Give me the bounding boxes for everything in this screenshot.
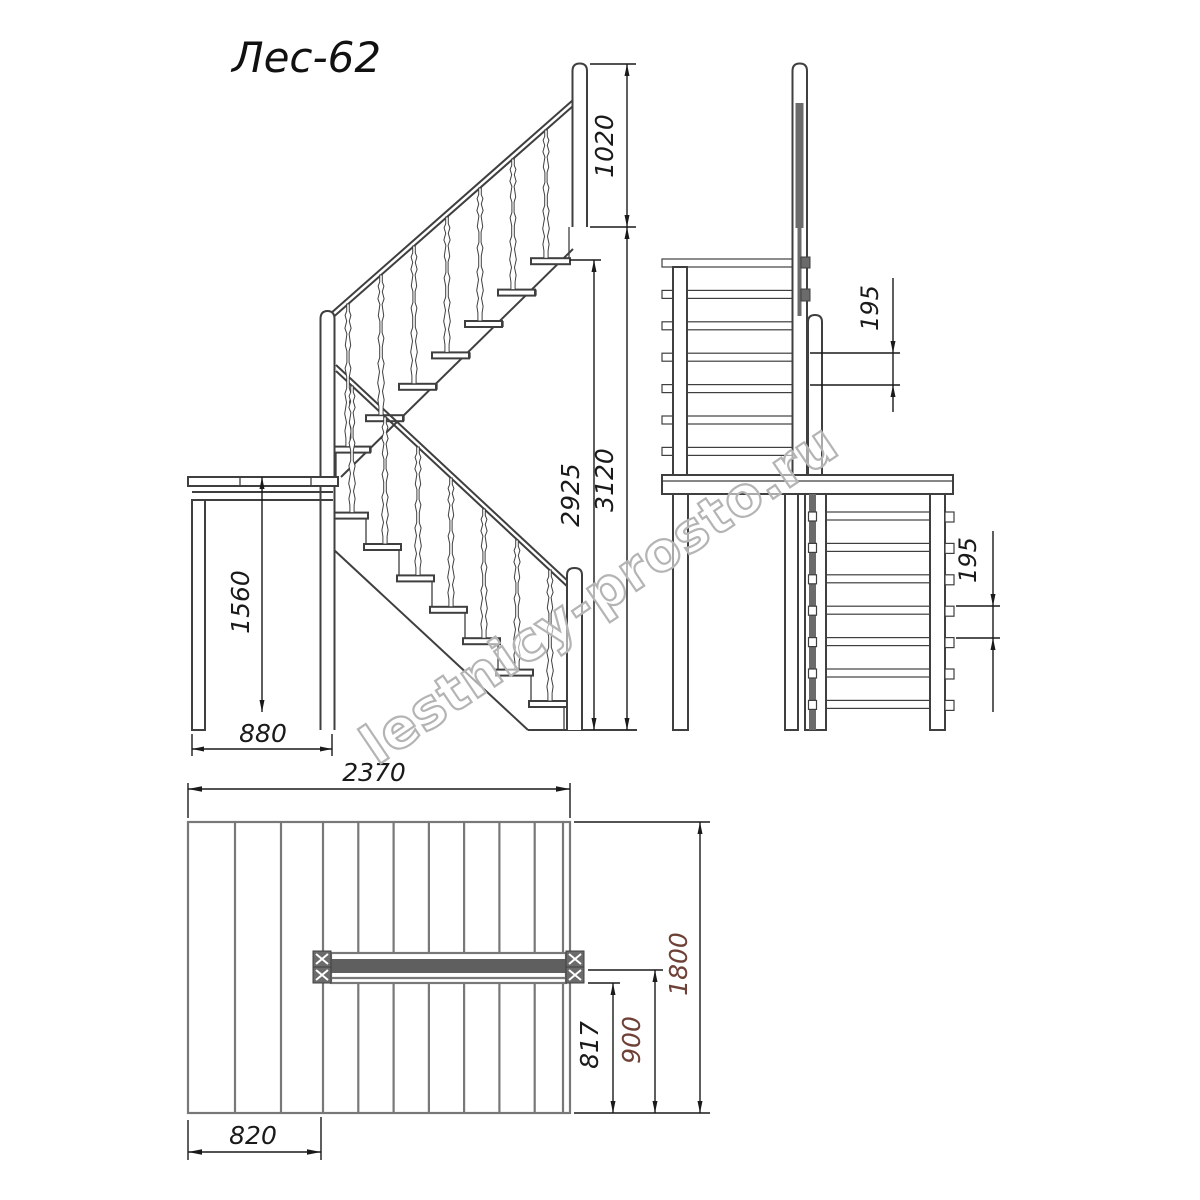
dim-2925: 2925 — [556, 463, 585, 527]
baluster — [477, 188, 484, 321]
front-left-post — [673, 267, 687, 476]
front-center-leg — [785, 494, 798, 730]
drawing-title: Лес-62 — [230, 33, 381, 82]
dim-195-lower: 195 — [954, 537, 982, 583]
baluster — [444, 217, 451, 352]
upper-stringer — [341, 249, 573, 477]
baluster — [448, 478, 455, 607]
mid-newel-post — [321, 311, 335, 730]
baluster — [378, 275, 385, 415]
front-elevation-view — [662, 64, 954, 731]
baluster — [543, 130, 550, 258]
top-newel-post — [573, 64, 588, 228]
dim-1560: 1560 — [226, 570, 255, 634]
baluster — [411, 246, 418, 384]
baluster — [510, 159, 517, 290]
tread-end-tab — [801, 257, 810, 268]
dim-1020: 1020 — [590, 114, 619, 178]
staircase-drawing: 1020 3120 2925 1560 880 195 — [0, 0, 1200, 1200]
side-platform — [188, 477, 338, 730]
dim-195-upper: 195 — [856, 285, 884, 331]
tread-end-tab — [801, 289, 810, 301]
plan-view — [188, 822, 584, 1113]
dim-817: 817 — [575, 1021, 604, 1069]
rail-end-on — [796, 103, 804, 228]
dim-820: 820 — [229, 1121, 277, 1150]
baluster — [382, 417, 389, 544]
front-right-post — [930, 494, 945, 730]
baluster — [481, 509, 488, 638]
right-tread-tabs — [945, 512, 954, 710]
rail-end-on-lower — [798, 228, 802, 316]
dim-880: 880 — [239, 719, 287, 748]
upper-handrail — [330, 100, 573, 320]
dim-1800: 1800 — [664, 932, 693, 996]
dim-900: 900 — [617, 1016, 646, 1064]
baluster — [415, 447, 422, 575]
front-lower-treads — [822, 512, 930, 708]
drawing-page: 1020 3120 2925 1560 880 195 — [0, 0, 1200, 1200]
platform-left-leg — [192, 500, 205, 730]
